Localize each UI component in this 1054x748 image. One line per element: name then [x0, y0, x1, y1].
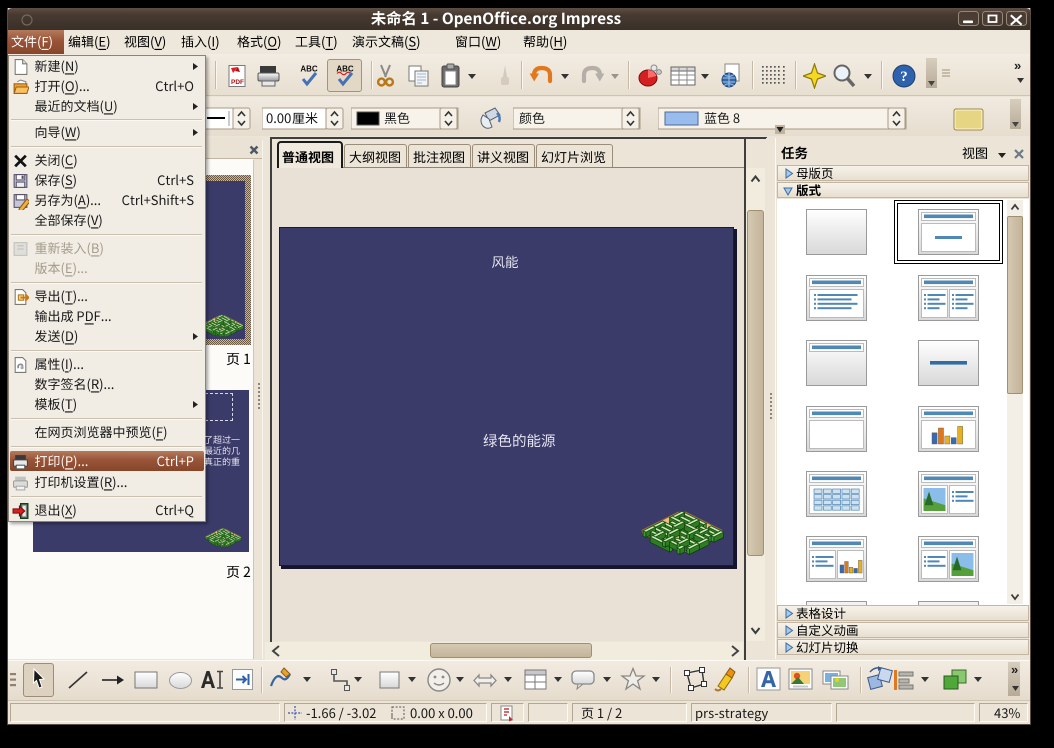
svg-text:»: »	[1014, 58, 1021, 72]
svg-text:ABC: ABC	[300, 65, 318, 74]
svg-text:PDF: PDF	[231, 79, 244, 86]
svg-text:?: ?	[900, 69, 908, 85]
svg-text:»: »	[1011, 662, 1018, 676]
